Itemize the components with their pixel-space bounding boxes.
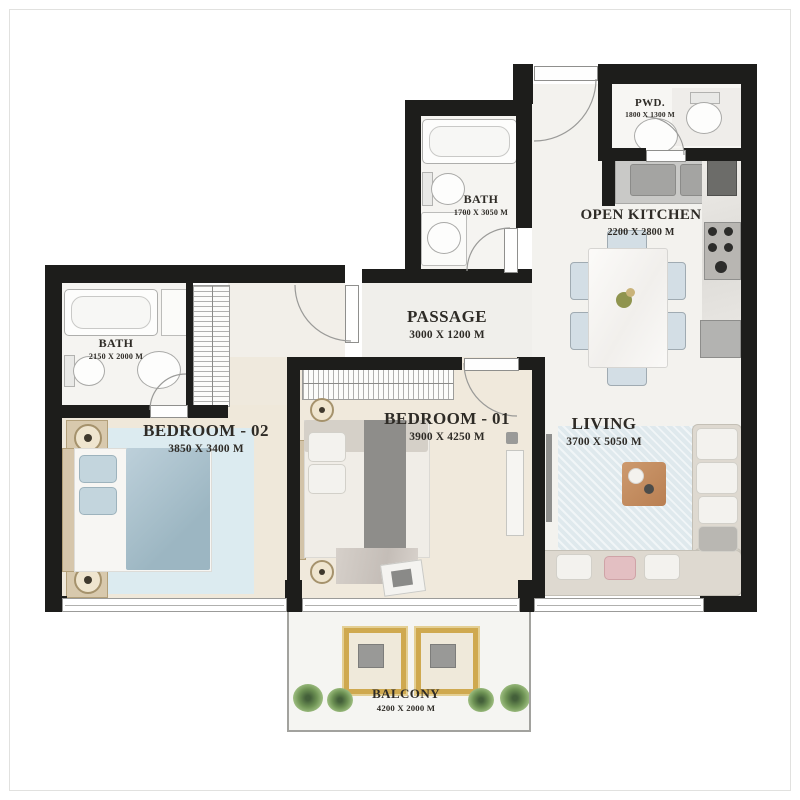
bath-top-sink — [427, 222, 461, 254]
bedroom1-door — [464, 358, 519, 371]
wall — [741, 64, 757, 612]
room-name: OPEN KITCHEN — [580, 206, 701, 226]
balcony-label: BALCONY 4200 X 2000 M — [372, 686, 440, 714]
passage-label: PASSAGE 3000 X 1200 M — [407, 306, 487, 343]
room-name: BALCONY — [372, 686, 440, 703]
sofa-pillow-1 — [696, 428, 738, 460]
kitchen-label: OPEN KITCHEN 2200 X 2800 M — [580, 206, 701, 239]
bedroom2-door — [345, 285, 359, 343]
coffee-table — [622, 462, 666, 506]
table-flowers-2 — [626, 288, 635, 297]
vestibule-floor — [228, 283, 345, 357]
pwd-toilet — [686, 102, 722, 134]
balcony-edge-right — [529, 612, 531, 732]
plant-2 — [327, 688, 353, 712]
room-dims: 3900 X 4250 M — [384, 430, 510, 445]
plant-1 — [293, 684, 323, 712]
kitchen-sink-basin-left — [630, 164, 676, 196]
sofa-pillow-3 — [698, 496, 738, 524]
wall — [287, 357, 300, 612]
bedroom1-pillow-1 — [308, 432, 346, 462]
room-name: BEDROOM - 01 — [384, 408, 510, 430]
wall — [598, 84, 612, 150]
bedroom2-duvet — [126, 448, 210, 570]
tv-console — [546, 434, 552, 522]
sofa-pillow-gray — [698, 526, 738, 552]
living-window — [534, 598, 704, 612]
bedroom2-wardrobe — [193, 285, 230, 407]
wall — [45, 265, 345, 283]
wall — [684, 148, 741, 161]
wall — [405, 100, 532, 116]
wall — [532, 369, 545, 612]
floor-plan: PWD. 1800 X 1300 M BATH 1700 X 3050 M OP… — [0, 0, 800, 800]
room-name: LIVING — [566, 413, 642, 435]
wall — [700, 596, 757, 612]
bedroom2-label: BEDROOM - 02 3850 X 3400 M — [143, 420, 269, 457]
plant-3 — [468, 688, 494, 712]
room-dims: 1800 X 1300 M — [625, 110, 675, 120]
wall — [285, 580, 302, 612]
bath-left-door — [150, 405, 188, 418]
living-label: LIVING 3700 X 5050 M — [566, 413, 642, 450]
sofa-pillow-pink — [604, 556, 636, 580]
bath-top-tub — [422, 119, 517, 164]
room-dims: 4200 X 2000 M — [372, 703, 440, 714]
wall — [602, 148, 615, 206]
wall — [405, 100, 421, 283]
wall — [518, 580, 534, 612]
balcony-chair-right — [416, 628, 478, 694]
vestibule-floor-lower — [228, 357, 287, 405]
pwd-label: PWD. 1800 X 1300 M — [625, 96, 675, 120]
bedroom2-pillow-2 — [79, 487, 117, 515]
plant-4 — [500, 684, 530, 712]
room-dims: 1700 X 3050 M — [454, 208, 508, 218]
wall — [598, 64, 757, 84]
room-dims: 3700 X 5050 M — [566, 435, 642, 450]
bath-left-tub — [64, 289, 158, 336]
bedroom2-window — [62, 598, 287, 612]
bath-top-door — [504, 228, 518, 273]
bath-top-label: BATH 1700 X 3050 M — [454, 192, 508, 218]
balcony-edge-left — [287, 612, 289, 732]
bedroom1-lamp-top — [310, 398, 334, 422]
balcony-chair-left — [344, 628, 406, 694]
stove-hob — [704, 222, 741, 280]
wall — [186, 283, 193, 405]
room-dims: 2200 X 2800 M — [580, 226, 701, 239]
balcony-sliding-door — [302, 598, 520, 612]
bedroom1-pillow-2 — [308, 464, 346, 494]
coffee-table-bowl — [644, 484, 654, 494]
sofa-pillow-2 — [696, 462, 738, 494]
room-name: BATH — [89, 336, 143, 352]
sofa-pillow-5 — [644, 554, 680, 580]
bath-left-niche — [161, 289, 188, 336]
bath-left-label: BATH 2150 X 2000 M — [89, 336, 143, 362]
bedroom1-lamp-bottom — [310, 560, 334, 584]
coffee-machine — [707, 160, 737, 196]
wall — [513, 64, 533, 104]
bedroom1-wardrobe — [302, 366, 454, 400]
bedroom2-pillow-1 — [79, 455, 117, 483]
wall — [45, 405, 150, 418]
wall — [186, 405, 228, 418]
room-name: PASSAGE — [407, 306, 487, 328]
room-dims: 2150 X 2000 M — [89, 352, 143, 362]
bedroom1-label: BEDROOM - 01 3900 X 4250 M — [384, 408, 510, 445]
fridge — [700, 320, 741, 358]
entry-door — [534, 66, 598, 81]
wall — [45, 265, 62, 612]
bath-left-sink — [137, 351, 181, 389]
coffee-table-plate — [628, 468, 644, 484]
room-name: BATH — [454, 192, 508, 208]
wall — [516, 112, 532, 228]
balcony-edge-bottom — [287, 730, 531, 732]
room-name: BEDROOM - 02 — [143, 420, 269, 442]
bedroom1-dresser — [506, 450, 524, 536]
dining-table — [588, 248, 668, 368]
pwd-door — [646, 150, 686, 162]
room-dims: 3000 X 1200 M — [407, 328, 487, 343]
room-name: PWD. — [625, 96, 675, 110]
room-dims: 3850 X 3400 M — [143, 442, 269, 457]
bedroom1-ottoman-tray — [391, 569, 413, 588]
sofa-pillow-4 — [556, 554, 592, 580]
wall — [287, 357, 462, 370]
